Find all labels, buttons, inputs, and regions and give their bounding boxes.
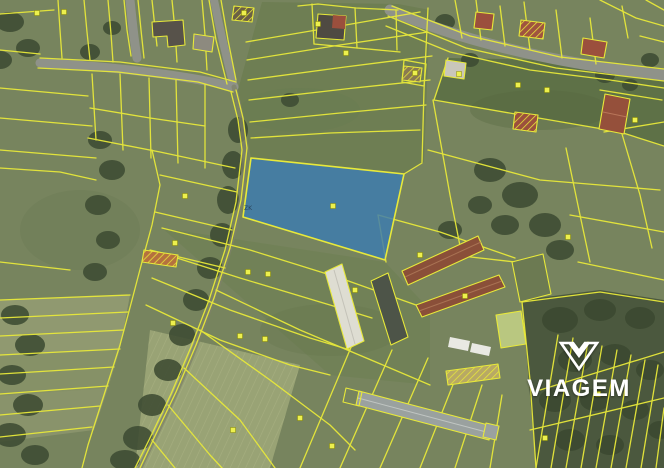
parcel-label: ZK	[244, 205, 253, 212]
cadastral-map-viewport[interactable]: ZK VIAGEM	[0, 0, 664, 468]
map-canvas[interactable]: ZK VIAGEM	[0, 0, 664, 468]
viagem-wordmark: VIAGEM	[527, 375, 631, 402]
